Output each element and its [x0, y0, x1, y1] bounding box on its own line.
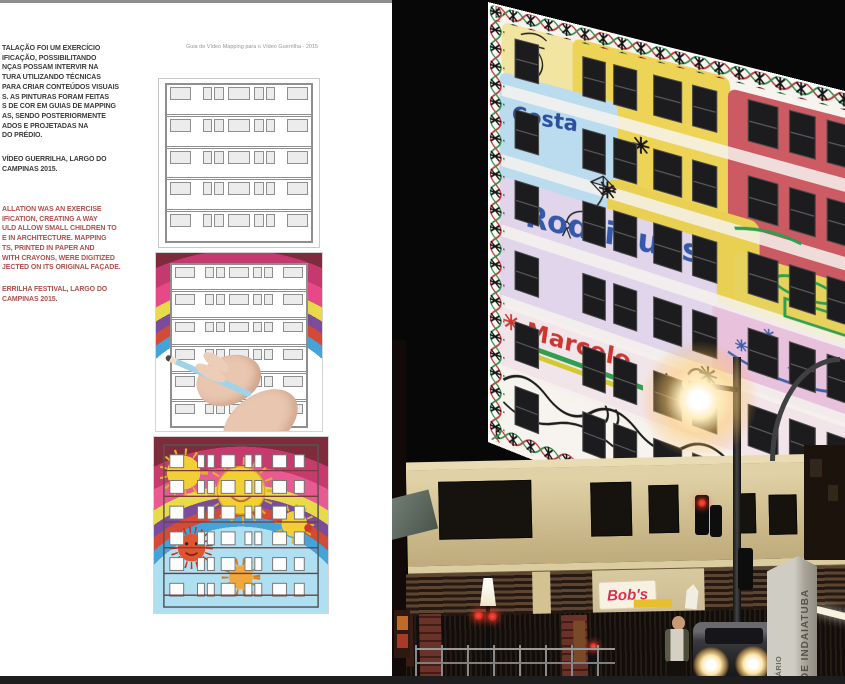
window: [283, 294, 303, 305]
window: [294, 506, 304, 519]
window: [214, 214, 224, 227]
window: [228, 182, 249, 195]
window: [266, 151, 276, 164]
window: [273, 480, 287, 493]
window: [228, 119, 249, 132]
street-sign-text-secondary: SÁRIO: [774, 622, 783, 682]
window: [245, 455, 252, 468]
window: [255, 532, 262, 545]
window: [197, 532, 204, 545]
window: [255, 455, 262, 468]
text-line: AS, SENDO POSTERIORMENTE: [2, 112, 150, 122]
window: [253, 322, 262, 333]
red-light: [488, 612, 497, 621]
window: [294, 480, 304, 493]
window: [170, 506, 184, 519]
window: [266, 119, 276, 132]
night-photo-projection: Costa Rodrigues Marcelo: [392, 0, 845, 684]
window: [266, 87, 276, 100]
window: [287, 182, 308, 195]
dim-building-right: [804, 445, 845, 560]
window: [283, 322, 303, 333]
text-line: DO PRÉDIO.: [2, 131, 150, 141]
window: [283, 349, 303, 360]
floor: [167, 180, 311, 212]
window: [207, 558, 214, 571]
window: [294, 455, 304, 468]
window: [254, 214, 264, 227]
window: [207, 506, 214, 519]
window: [214, 87, 224, 100]
window: [170, 214, 191, 227]
window: [253, 267, 262, 278]
window: [216, 322, 225, 333]
window: [255, 480, 262, 493]
text-line: PARA CRIAR CONTEÚDOS VISUAIS: [2, 83, 150, 93]
window: [214, 119, 224, 132]
dark-window: [648, 485, 679, 534]
text-line: E IN ARCHITECTURE. MAPPING: [2, 234, 154, 244]
window: [170, 182, 191, 195]
text-line: TS, PRINTED IN PAPER AND: [2, 244, 154, 254]
torso: [665, 629, 689, 662]
window: [266, 214, 276, 227]
english-description: ALLATION WAS AN EXERCISE IFICATION, CREA…: [2, 205, 154, 304]
window: [216, 294, 225, 305]
finished-crayon-drawing-diagram: [153, 436, 329, 614]
window: [229, 322, 249, 333]
floor: [167, 212, 311, 241]
window: [245, 506, 252, 519]
window: [254, 151, 264, 164]
portuguese-description: TALAÇÃO FOI UM EXERCÍCIO IFICAÇÃO, POSSI…: [2, 44, 150, 174]
window: [214, 151, 224, 164]
window: [264, 267, 273, 278]
window: [228, 151, 249, 164]
window: [170, 87, 191, 100]
window: [254, 119, 264, 132]
text-line: JECTED ON ITS ORIGINAL FAÇADE.: [2, 263, 154, 273]
text-line: S. AS PINTURAS FORAM FEITAS: [2, 93, 150, 103]
floor: [172, 292, 306, 319]
facade-outline: [165, 83, 313, 243]
window: [207, 532, 214, 545]
window: [264, 349, 273, 360]
window: [273, 506, 287, 519]
window: [228, 214, 249, 227]
window: [254, 182, 264, 195]
window: [207, 455, 214, 468]
viewer-bottom-bar: [0, 676, 845, 684]
red-light: [474, 611, 483, 620]
window: [197, 558, 204, 571]
text-line: TALAÇÃO FOI UM EXERCÍCIO: [2, 44, 150, 54]
window: [255, 506, 262, 519]
window: [273, 583, 287, 596]
window: [205, 294, 214, 305]
window: [264, 376, 273, 387]
window: [203, 119, 213, 132]
streetlight-head: [680, 387, 702, 396]
text-line: IFICAÇÃO, POSSIBILITANDO: [2, 54, 150, 64]
dark-window: [769, 494, 798, 535]
window: [197, 455, 204, 468]
window: [205, 267, 214, 278]
window: [273, 558, 287, 571]
street-sign-text: DE INDAIATUBA: [800, 570, 811, 680]
window: [175, 267, 195, 278]
window: [229, 294, 249, 305]
window: [170, 558, 184, 571]
window: [287, 214, 308, 227]
window: [287, 87, 308, 100]
window: [175, 322, 195, 333]
window: [170, 151, 191, 164]
poster: [397, 634, 408, 648]
traffic-light: [738, 548, 753, 590]
window: [253, 294, 262, 305]
window: [294, 583, 304, 596]
street-name-sign: DE INDAIATUBA SÁRIO: [767, 556, 817, 684]
window: [283, 267, 303, 278]
mapping-guide-coloring-diagram: [155, 252, 323, 432]
window: [170, 455, 184, 468]
window: [170, 480, 184, 493]
head: [672, 616, 685, 630]
car: [693, 622, 775, 681]
floor: [172, 265, 306, 292]
window: [170, 119, 191, 132]
window: [264, 294, 273, 305]
window: [283, 376, 303, 387]
window: [197, 583, 204, 596]
window: [221, 532, 235, 545]
window: [254, 87, 264, 100]
window: [221, 480, 235, 493]
window: [221, 558, 235, 571]
window: [221, 455, 235, 468]
text-line: TURA UTILIZANDO TÉCNICAS: [2, 73, 150, 83]
credit-line: CAMPINAS 2015.: [2, 165, 150, 175]
text-line: NÇAS POSSAM INTERVIR NA: [2, 63, 150, 73]
text-line: ULD ALLOW SMALL CHILDREN TO: [2, 224, 154, 234]
window: [203, 214, 213, 227]
mapping-guide-blank-diagram: [158, 78, 320, 248]
crowd-barriers: [415, 645, 615, 676]
window: [294, 558, 304, 571]
window: [253, 349, 262, 360]
window: [175, 294, 195, 305]
floor: [172, 320, 306, 347]
figure-caption: Guia de Vídeo Mapping para o Vídeo Guerr…: [186, 44, 318, 50]
window: [273, 532, 287, 545]
window: [245, 532, 252, 545]
window: [229, 267, 249, 278]
lit-poster-panel: [394, 610, 410, 658]
window: [205, 322, 214, 333]
window: [203, 87, 213, 100]
book-spread: TALAÇÃO FOI UM EXERCÍCIO IFICAÇÃO, POSSI…: [0, 0, 845, 684]
window: [245, 558, 252, 571]
floor: [167, 149, 311, 181]
window: [294, 532, 304, 545]
window: [255, 583, 262, 596]
floor: [167, 85, 311, 117]
crayon-drawing: [154, 437, 328, 613]
text-line: ADOS E PROJETADAS NA: [2, 122, 150, 132]
window: [170, 532, 184, 545]
dark-window: [590, 482, 632, 537]
window: [264, 322, 273, 333]
text-line: ALLATION WAS AN EXERCISE: [2, 205, 154, 215]
window: [245, 480, 252, 493]
poster: [397, 616, 408, 630]
window: [266, 182, 276, 195]
dark-window: [438, 480, 532, 540]
window: [245, 583, 252, 596]
window: [221, 506, 235, 519]
bobs-sign-yellow-strip: [634, 599, 672, 608]
window: [175, 376, 195, 387]
text-line: IFICATION, CREATING A WAY: [2, 215, 154, 225]
text-line: S DE COR EM GUIAS DE MAPPING: [2, 102, 150, 112]
window: [228, 87, 249, 100]
window: [203, 151, 213, 164]
window: [197, 480, 204, 493]
traffic-light: [710, 505, 722, 537]
window: [221, 583, 235, 596]
window: [214, 182, 224, 195]
window: [827, 120, 845, 170]
floor: [167, 117, 311, 149]
window: [175, 404, 195, 415]
window: [170, 583, 184, 596]
pedestrian: [662, 616, 692, 678]
traffic-light: [695, 495, 709, 535]
red-light: [698, 499, 706, 507]
car-windshield: [705, 628, 763, 644]
credit-line: CAMPINAS 2015.: [2, 295, 154, 305]
window: [827, 198, 845, 249]
window: [207, 583, 214, 596]
text-line: WITH CRAYONS, WERE DIGITIZED: [2, 254, 154, 264]
credit-line: VÍDEO GUERRILHA, LARGO DO: [2, 155, 150, 165]
window: [287, 119, 308, 132]
window: [255, 558, 262, 571]
window: [207, 480, 214, 493]
credit-line: ERRILHA FESTIVAL, LARGO DO: [2, 285, 154, 295]
window: [287, 151, 308, 164]
window: [197, 506, 204, 519]
window: [273, 455, 287, 468]
window: [203, 182, 213, 195]
window: [216, 267, 225, 278]
